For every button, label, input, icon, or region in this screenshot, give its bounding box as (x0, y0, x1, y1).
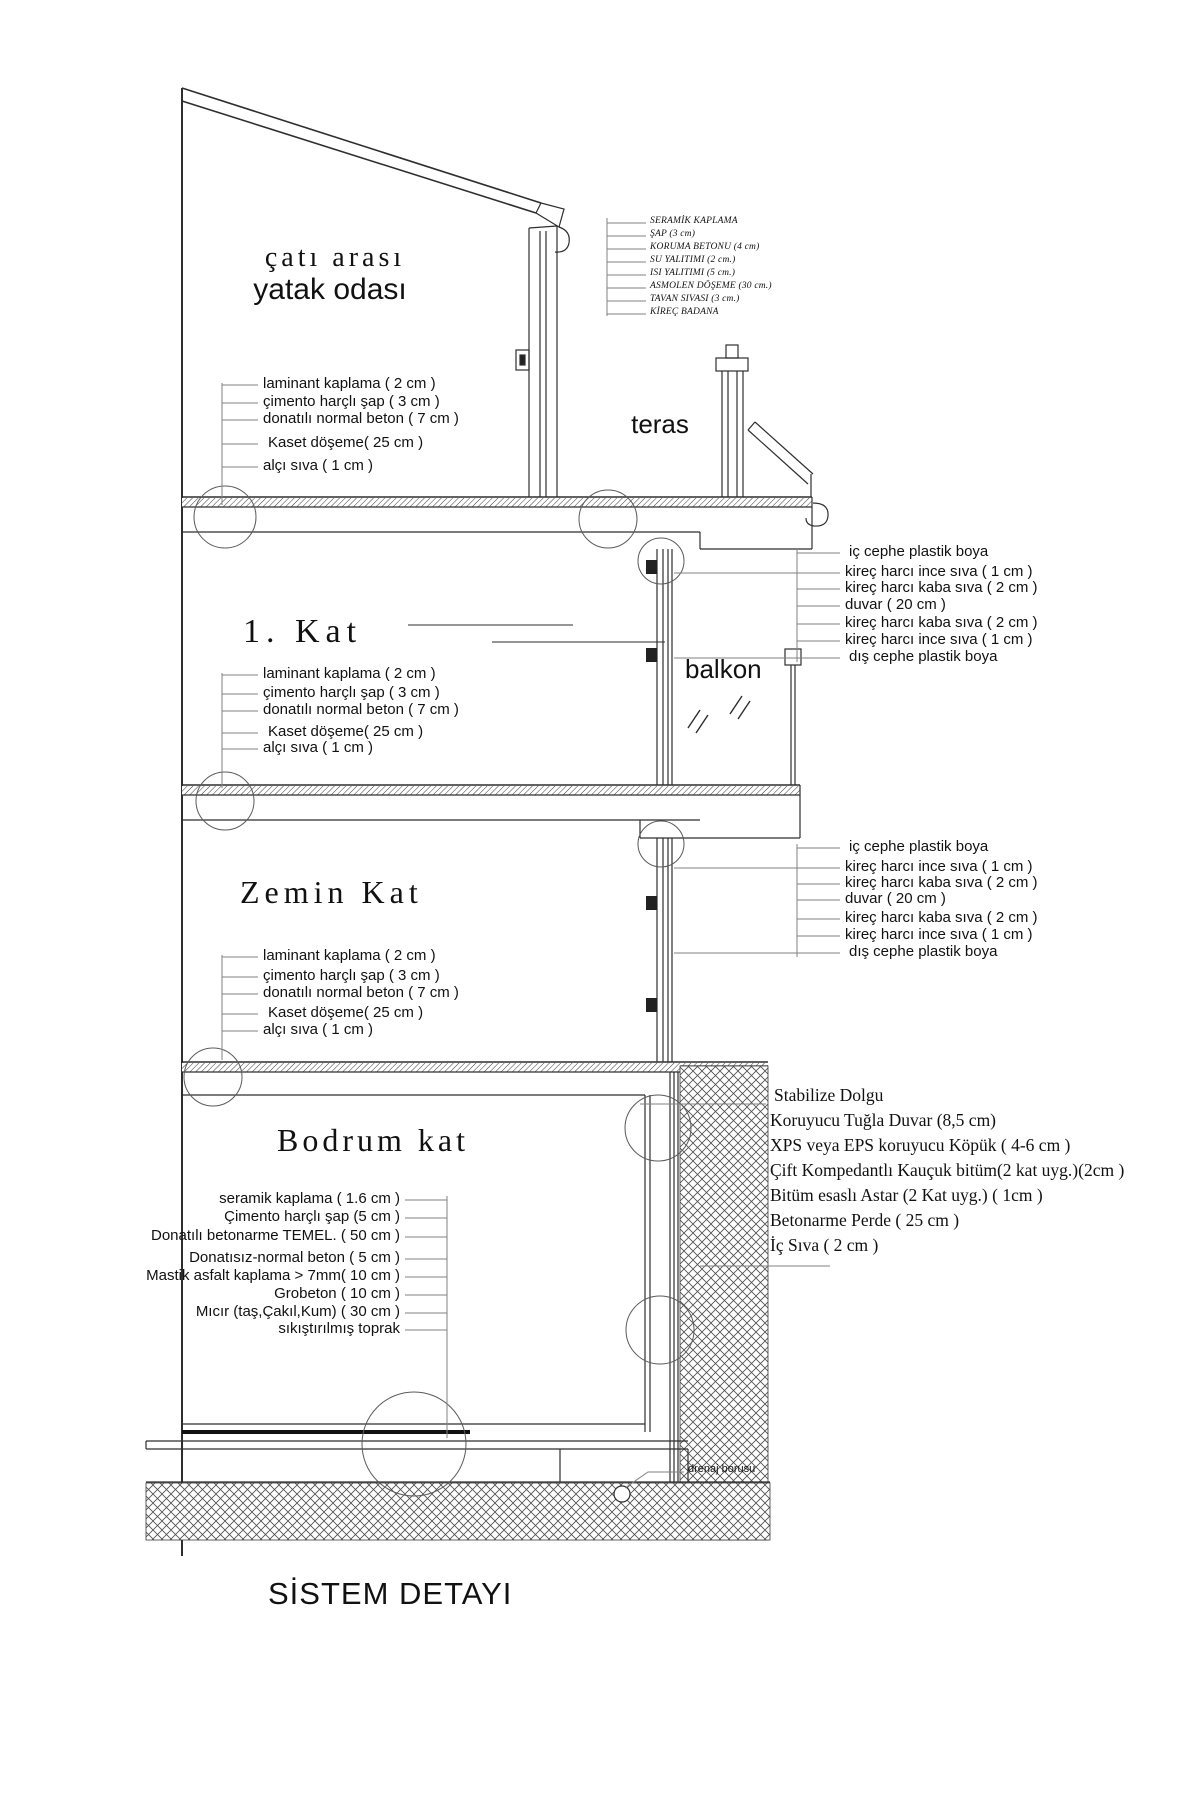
roof-layer-label: ŞAP (3 cm) (650, 230, 695, 240)
basement-floor-layer-label: Mıcır (taş,Çakıl,Kum) ( 30 cm ) (140, 1304, 400, 1320)
basement-floor-layer-label: Grobeton ( 10 cm ) (140, 1286, 400, 1302)
basement-wall-layer-label: Bitüm esaslı Astar (2 Kat uyg.) ( 1cm ) (770, 1186, 1043, 1204)
floor-layer-label: Kaset döşeme( 25 cm ) (268, 435, 423, 451)
first-floor-stack-leaders (222, 673, 258, 788)
wall-layer-label: kireç harcı ince sıva ( 1 cm ) (845, 927, 1033, 943)
wall-layer-label: kireç harcı kaba sıva ( 2 cm ) (845, 910, 1038, 926)
basement-wall-layer-label: Koruyucu Tuğla Duvar (8,5 cm) (770, 1111, 996, 1129)
floor-layer-label: çimento harçlı şap ( 3 cm ) (263, 968, 440, 984)
terrace-railing (716, 345, 813, 497)
basement-floor-layer-label: Mastik asfalt kaplama > 7mm( 10 cm ) (140, 1268, 400, 1284)
wall-layer-label: kireç harcı kaba sıva ( 2 cm ) (845, 615, 1038, 631)
attic-floor-slab (182, 497, 828, 549)
basement-floor-stack-leaders (405, 1196, 447, 1438)
floor-layer-label: alçı sıva ( 1 cm ) (263, 458, 373, 474)
floor-layer-label: alçı sıva ( 1 cm ) (263, 740, 373, 756)
ground-floor-label: Zemin Kat (240, 876, 423, 910)
wall-layer-label: dış cephe plastik boya (849, 649, 997, 665)
section-drawing (0, 0, 1200, 1800)
basement-floor-layer-label: seramik kaplama ( 1.6 cm ) (140, 1191, 400, 1207)
floor-layer-label: donatılı normal beton ( 7 cm ) (263, 702, 459, 718)
wall-layer-label: duvar ( 20 cm ) (845, 891, 946, 907)
attic-room-label-line2: yatak odası (205, 274, 455, 306)
basement-floor-layer-label: Donatılı betonarme TEMEL. ( 50 cm ) (140, 1228, 400, 1244)
wall-layer-label: dış cephe plastik boya (849, 944, 997, 960)
roof-stack-leaders (607, 218, 646, 316)
basement-floor-layer-label: sıkıştırılmış toprak (140, 1321, 400, 1337)
balcony-label: balkon (685, 656, 762, 683)
floor-layer-label: donatılı normal beton ( 7 cm ) (263, 411, 459, 427)
balcony-railing (785, 649, 801, 785)
drain-pipe (614, 1486, 630, 1502)
attic-floor-stack-leaders (222, 383, 258, 505)
basement-floor-layer-label: Çimento harçlı şap (5 cm ) (140, 1209, 400, 1225)
basement-wall-layer-label: XPS veya EPS koruyucu Köpük ( 4-6 cm ) (770, 1136, 1070, 1154)
foundation-slab (146, 1424, 770, 1482)
basement-wall-layer-label: Betonarme Perde ( 25 cm ) (770, 1211, 959, 1229)
wall-layer-label: kireç harcı kaba sıva ( 2 cm ) (845, 875, 1038, 891)
basement-wall-layer-label: Stabilize Dolgu (774, 1086, 883, 1104)
roof-layer-label: ASMOLEN DÖŞEME (30 cm.) (650, 282, 772, 292)
basement-wall-layer-label: İç Sıva ( 2 cm ) (770, 1236, 878, 1254)
basement-label: Bodrum kat (277, 1124, 469, 1158)
wall-layer-label: kireç harcı ince sıva ( 1 cm ) (845, 859, 1033, 875)
roof-layer-label: SERAMİK KAPLAMA (650, 217, 738, 227)
wall-layer-label: duvar ( 20 cm ) (845, 597, 946, 613)
basement-floor-layer-label: Donatısız-normal beton ( 5 cm ) (140, 1250, 400, 1266)
wall-stack-1-leaders (674, 549, 840, 662)
attic-window (516, 226, 557, 497)
floor-layer-label: çimento harçlı şap ( 3 cm ) (263, 685, 440, 701)
first-floor-slab (182, 785, 800, 838)
terrace-label: teras (600, 411, 720, 438)
wall-layer-label: iç cephe plastik boya (849, 544, 988, 560)
drawing-title: SİSTEM DETAYI (268, 1578, 512, 1611)
roof-layer-label: ISI YALITIMI (5 cm.) (650, 269, 735, 279)
soil-strip-hatch (146, 1483, 770, 1540)
floor-layer-label: laminant kaplama ( 2 cm ) (263, 948, 436, 964)
wall-layer-label: kireç harcı ince sıva ( 1 cm ) (845, 564, 1033, 580)
drain-label: drenaj borusu (688, 1464, 755, 1476)
wall-layer-label: kireç harcı kaba sıva ( 2 cm ) (845, 580, 1038, 596)
section-drawing-canvas: SERAMİK KAPLAMA ŞAP (3 cm) KORUMA BETONU… (0, 0, 1200, 1800)
floor-layer-label: Kaset döşeme( 25 cm ) (268, 724, 423, 740)
first-floor-label: 1. Kat (243, 614, 362, 650)
floor-layer-label: laminant kaplama ( 2 cm ) (263, 666, 436, 682)
floor-layer-label: alçı sıva ( 1 cm ) (263, 1022, 373, 1038)
roof-layer-label: KİREÇ BADANA (650, 308, 719, 318)
roof-outline (182, 88, 569, 252)
floor-layer-label: çimento harçlı şap ( 3 cm ) (263, 394, 440, 410)
attic-room-label-line1: çatı arası (225, 243, 445, 272)
roof-layer-label: KORUMA BETONU (4 cm) (650, 243, 759, 253)
basement-wall-layer-label: Çift Kompedantlı Kauçuk bitüm(2 kat uyg.… (770, 1161, 1124, 1179)
floor-layer-label: Kaset döşeme( 25 cm ) (268, 1005, 423, 1021)
first-floor-interior-lines (408, 625, 665, 642)
wall-layer-label: iç cephe plastik boya (849, 839, 988, 855)
wall-layer-label: kireç harcı ince sıva ( 1 cm ) (845, 632, 1033, 648)
balcony-glass-marks (688, 696, 750, 733)
floor-layer-label: laminant kaplama ( 2 cm ) (263, 376, 436, 392)
ground-floor-stack-leaders (222, 955, 258, 1060)
ground-floor-wall (646, 838, 672, 1062)
wall-stack-2-leaders (674, 844, 840, 957)
roof-layer-label: SU YALITIMI (2 cm.) (650, 256, 735, 266)
floor-layer-label: donatılı normal beton ( 7 cm ) (263, 985, 459, 1001)
roof-layer-label: TAVAN SIVASI (3 cm.) (650, 295, 740, 305)
